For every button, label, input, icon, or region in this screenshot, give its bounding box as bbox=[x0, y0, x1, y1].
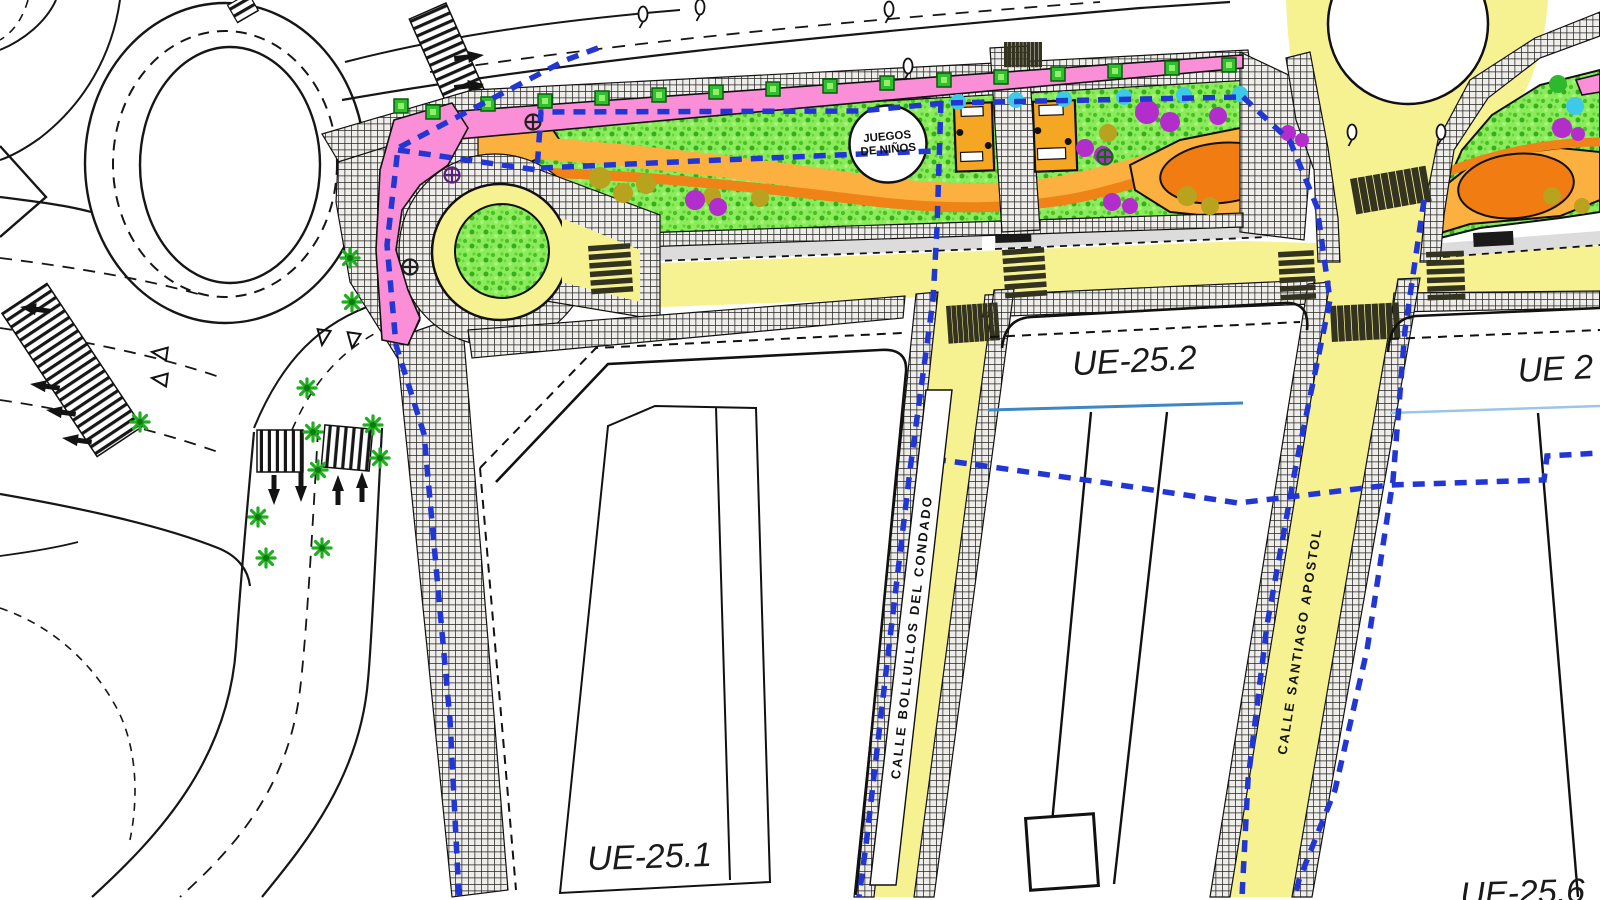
zebra-crosswalk bbox=[257, 430, 303, 472]
sw-road-bottom-edge bbox=[0, 494, 250, 586]
zone-label-ue-25-6: UE-25.6 bbox=[1460, 872, 1586, 900]
south-road-west-edge bbox=[92, 432, 254, 897]
zone-label-ue-25-1: UE-25.1 bbox=[587, 836, 713, 878]
topleft-dash-arc bbox=[0, 0, 28, 40]
roundabout-lane-dashed bbox=[113, 31, 337, 297]
corner-island-curve bbox=[254, 303, 378, 428]
zebra-crosswalk bbox=[228, 0, 259, 23]
play-structure-2 bbox=[1033, 100, 1077, 171]
zone-label-ue-2: UE 2 bbox=[1517, 348, 1595, 390]
topleft-curve1 bbox=[0, 0, 56, 50]
plan-canvas: JUEGOS DE NIÑOS UE-25.2 UE 2 UE-25.1 UE-… bbox=[0, 0, 1600, 900]
bottomleft-dash bbox=[0, 608, 135, 840]
play-structure-1 bbox=[954, 102, 994, 171]
bottomleft-line bbox=[0, 542, 78, 556]
sw-road-top-edge bbox=[0, 197, 91, 212]
top-road-edge2 bbox=[345, 10, 680, 62]
block-ue-25-1-fill bbox=[484, 338, 912, 896]
roadside-trees bbox=[131, 249, 389, 567]
sw-lane-dash1 bbox=[0, 258, 205, 296]
roundabout-center-island bbox=[140, 47, 320, 283]
parcel-rect bbox=[1026, 814, 1099, 891]
roundabout-outer-ring bbox=[85, 3, 365, 323]
urban-plan-map: JUEGOS DE NIÑOS UE-25.2 UE 2 UE-25.1 UE-… bbox=[0, 0, 1600, 900]
zone-label-ue-25-2: UE-25.2 bbox=[1071, 339, 1198, 383]
topleft-curve2 bbox=[0, 0, 120, 160]
left-wedge bbox=[0, 146, 46, 237]
zebra-crosswalk bbox=[2, 283, 142, 456]
turnaround-green bbox=[455, 204, 549, 298]
development-blocks bbox=[484, 302, 1600, 897]
